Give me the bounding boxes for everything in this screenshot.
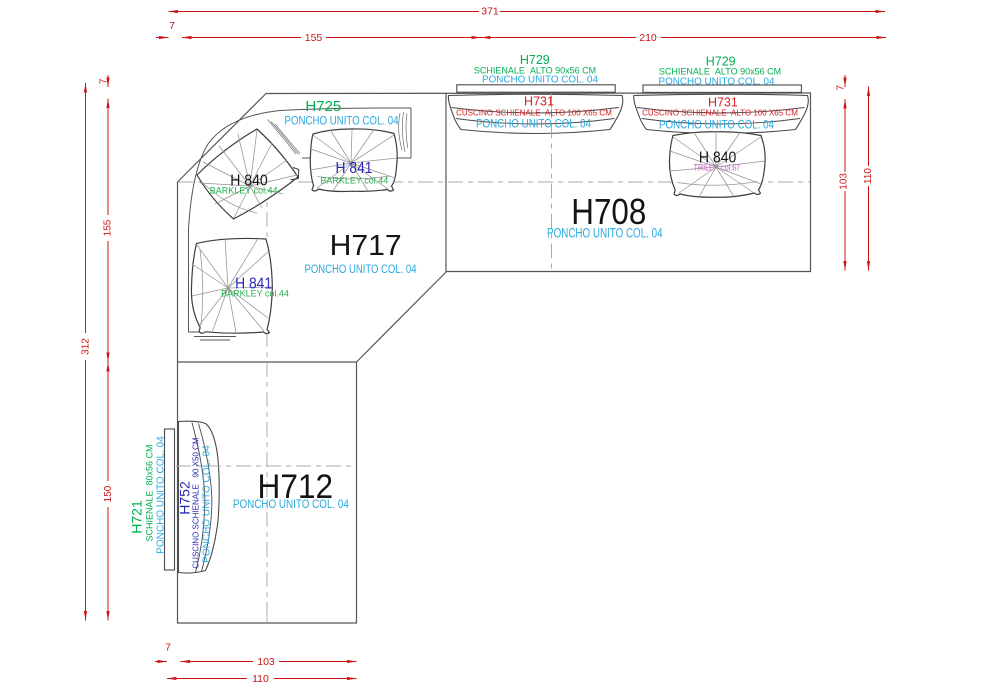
svg-text:TRILLY col.67: TRILLY col.67 — [694, 163, 741, 173]
svg-text:155: 155 — [305, 32, 323, 44]
svg-text:SCHIENALE 80x56 CM: SCHIENALE 80x56 CM — [144, 444, 154, 541]
svg-text:PONCHO UNITO COL. 04: PONCHO UNITO COL. 04 — [155, 436, 166, 554]
svg-text:CUSCINO SCHIENALE ALTO 100 X6: CUSCINO SCHIENALE ALTO 100 X65 CM — [642, 109, 798, 118]
svg-text:PONCHO UNITO COL. 04: PONCHO UNITO COL. 04 — [476, 119, 592, 131]
svg-text:CUSCINO SCHIENALE ALTO 100 X6: CUSCINO SCHIENALE ALTO 100 X65 CM — [456, 108, 612, 117]
svg-text:7: 7 — [165, 642, 171, 654]
svg-text:H731: H731 — [708, 96, 738, 110]
svg-text:312: 312 — [80, 338, 91, 355]
svg-text:H 841: H 841 — [336, 160, 373, 177]
svg-text:H717: H717 — [330, 230, 402, 262]
svg-text:H752: H752 — [176, 481, 192, 515]
svg-text:H725: H725 — [305, 98, 341, 115]
svg-text:PONCHO UNITO COL. 04: PONCHO UNITO COL. 04 — [305, 264, 417, 276]
svg-text:BARKLEY col.44: BARKLEY col.44 — [221, 289, 289, 299]
svg-text:7: 7 — [98, 78, 109, 84]
svg-text:PONCHO UNITO COL. 04: PONCHO UNITO COL. 04 — [547, 226, 663, 241]
svg-text:CUSCINO SCHIENALE 90 X50 CM: CUSCINO SCHIENALE 90 X50 CM — [191, 437, 200, 568]
svg-text:PONCHO UNITO COL. 04: PONCHO UNITO COL. 04 — [233, 499, 350, 511]
svg-text:7: 7 — [169, 20, 175, 32]
svg-text:110: 110 — [252, 673, 269, 685]
svg-text:PONCHO UNITO COL. 04: PONCHO UNITO COL. 04 — [659, 120, 775, 132]
svg-text:BARKLEY col.44: BARKLEY col.44 — [320, 176, 388, 186]
svg-text:PONCHO UNITO COL. 04: PONCHO UNITO COL. 04 — [201, 445, 212, 563]
svg-text:PONCHO UNITO COL. 04: PONCHO UNITO COL. 04 — [659, 75, 775, 87]
svg-text:110: 110 — [863, 168, 874, 184]
svg-text:103: 103 — [838, 173, 849, 190]
svg-text:H721: H721 — [129, 500, 145, 534]
svg-text:7: 7 — [836, 85, 847, 91]
svg-text:103: 103 — [257, 656, 275, 668]
svg-text:H731: H731 — [524, 95, 554, 109]
svg-text:371: 371 — [481, 6, 499, 18]
svg-text:BARKLEY col.44: BARKLEY col.44 — [210, 186, 278, 196]
svg-text:155: 155 — [102, 219, 113, 236]
svg-text:PONCHO UNITO COL. 04: PONCHO UNITO COL. 04 — [482, 73, 598, 85]
svg-text:210: 210 — [639, 32, 657, 44]
svg-text:150: 150 — [103, 485, 114, 502]
svg-text:PONCHO UNITO COL. 04: PONCHO UNITO COL. 04 — [285, 114, 399, 128]
